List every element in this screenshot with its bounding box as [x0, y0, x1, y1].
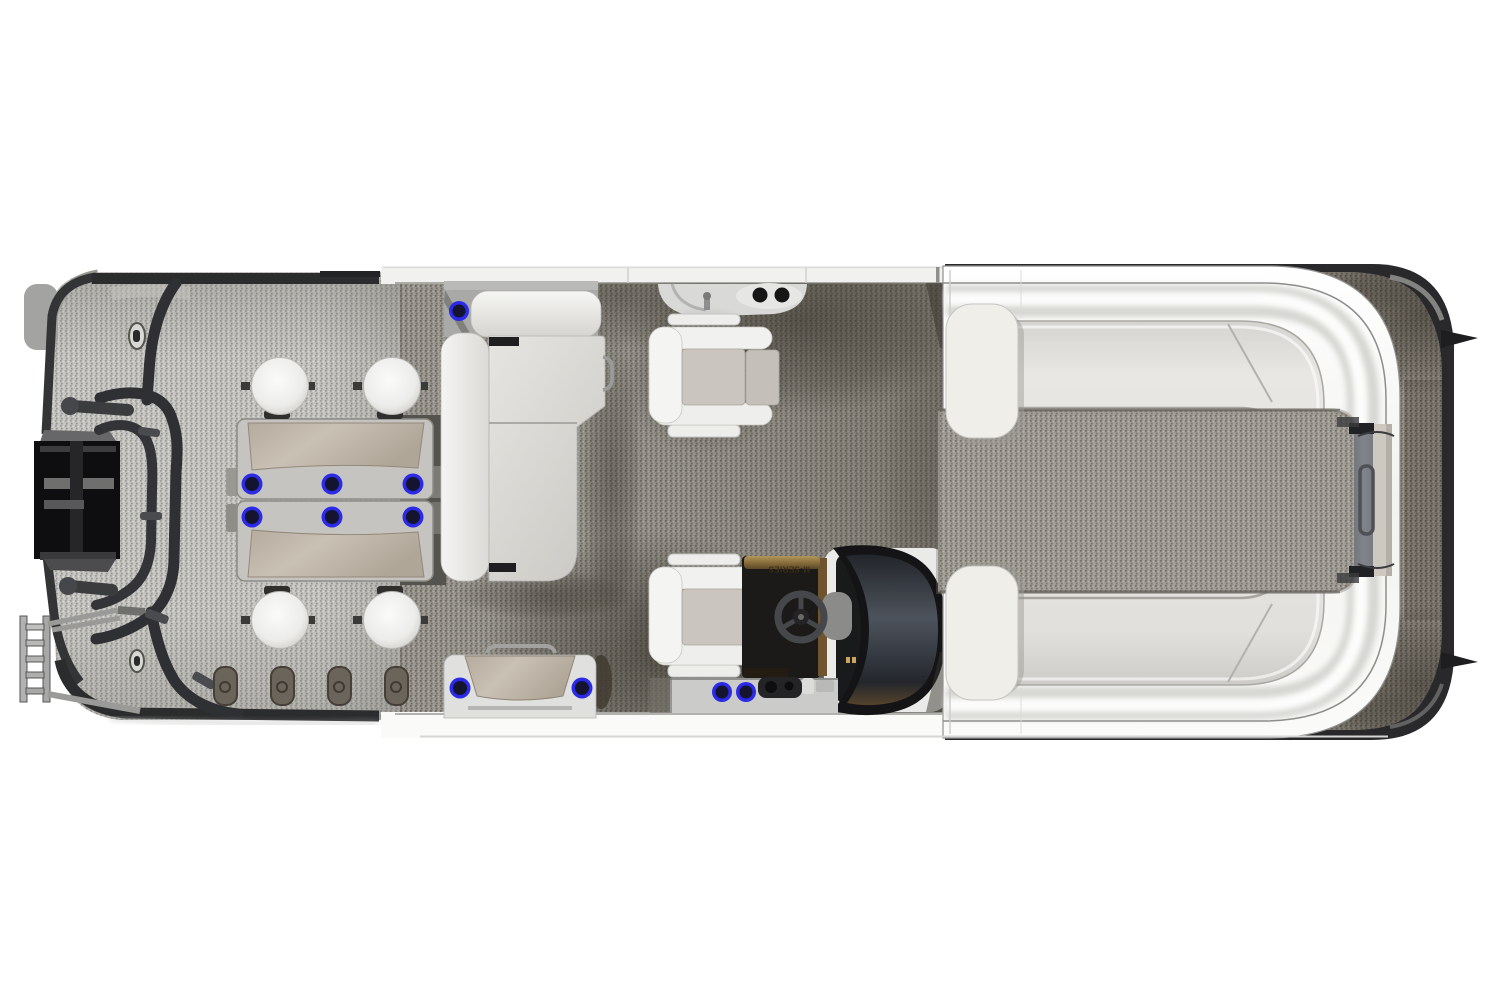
svg-text:M-SERIES: M-SERIES [768, 565, 810, 574]
